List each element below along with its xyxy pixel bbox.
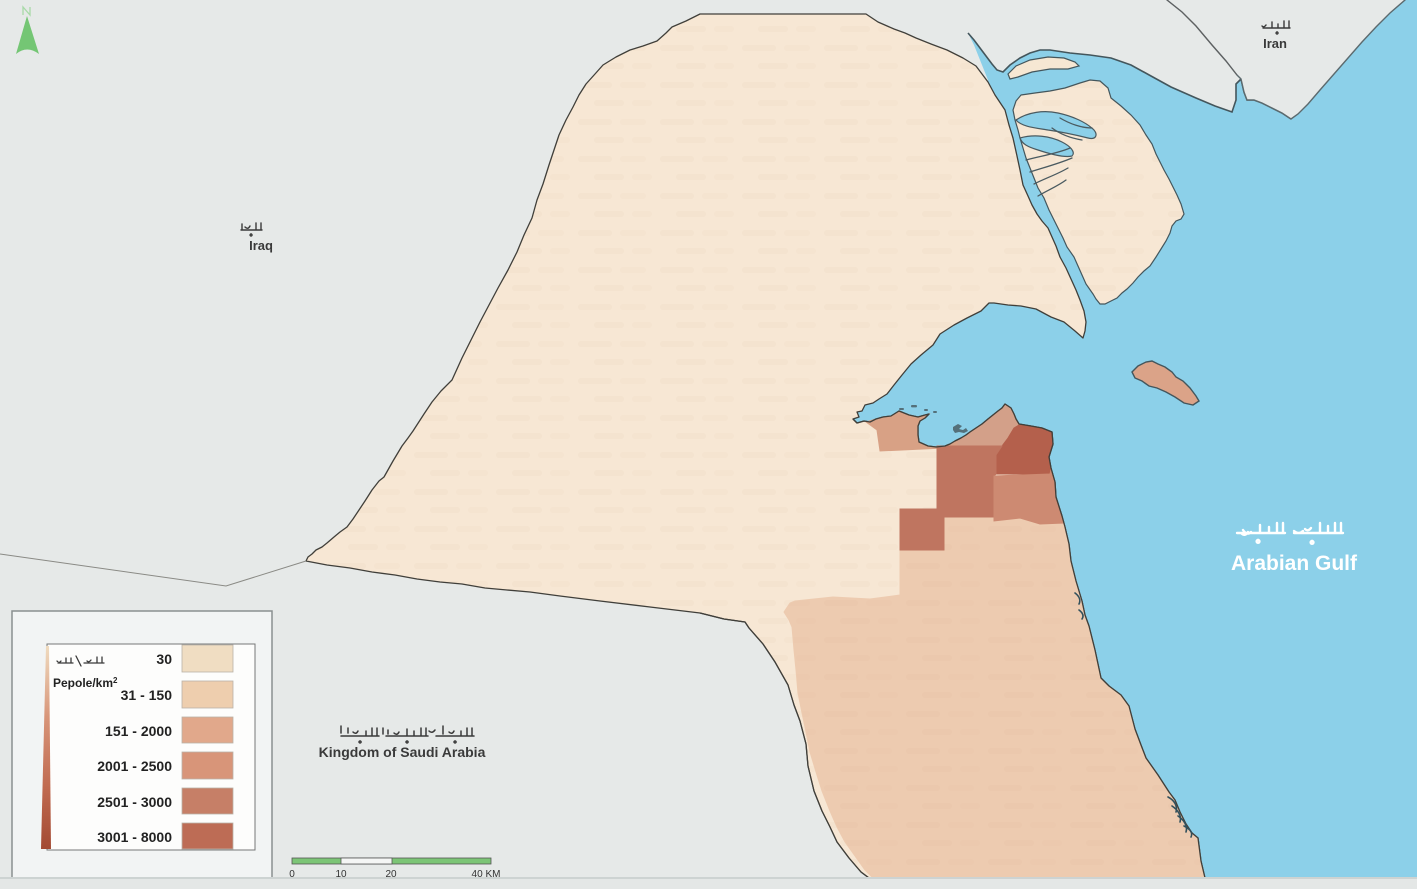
svg-text:151 - 2000: 151 - 2000 — [105, 723, 172, 739]
svg-text:30: 30 — [156, 651, 172, 667]
svg-text:2001 - 2500: 2001 - 2500 — [97, 758, 172, 774]
svg-text:Kingdom of Saudi Arabia: Kingdom of Saudi Arabia — [319, 744, 486, 760]
svg-text:Arabian Gulf: Arabian Gulf — [1231, 552, 1358, 575]
svg-text:31 - 150: 31 - 150 — [121, 687, 173, 703]
svg-text:Iran: Iran — [1263, 36, 1287, 51]
svg-text:3001 - 8000: 3001 - 8000 — [97, 829, 172, 845]
svg-text:Pepole/km2: Pepole/km2 — [53, 676, 118, 690]
svg-text:2501 - 3000: 2501 - 3000 — [97, 794, 172, 810]
svg-text:Iraq: Iraq — [249, 238, 273, 253]
